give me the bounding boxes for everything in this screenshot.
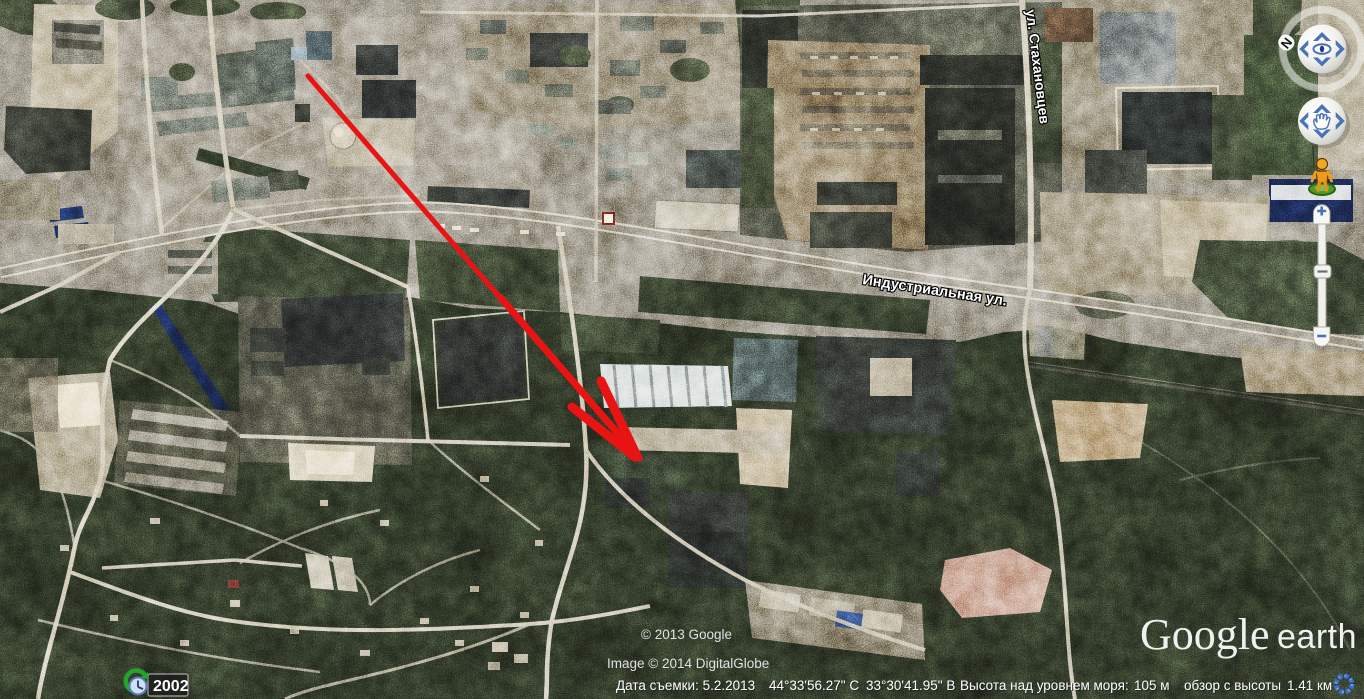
svg-text:Дата съемки: 5.2.2013: Дата съемки: 5.2.2013 — [616, 678, 755, 693]
svg-text:44°33'56.27" С: 44°33'56.27" С — [769, 678, 859, 693]
svg-text:1.41 км: 1.41 км — [1287, 678, 1332, 693]
svg-text:© 2013 Google: © 2013 Google — [641, 627, 732, 642]
svg-text:earth: earth — [1277, 618, 1357, 656]
svg-text:обзор с высоты: обзор с высоты — [1184, 678, 1281, 693]
svg-text:Image © 2014 DigitalGlobe: Image © 2014 DigitalGlobe — [607, 656, 769, 671]
svg-text:Google: Google — [1140, 610, 1270, 659]
svg-text:Высота над уровнем моря:: Высота над уровнем моря: — [960, 678, 1129, 693]
svg-text:33°30'41.95" В: 33°30'41.95" В — [866, 678, 955, 693]
svg-text:105 м: 105 м — [1134, 678, 1170, 693]
svg-text:2002: 2002 — [153, 678, 189, 695]
